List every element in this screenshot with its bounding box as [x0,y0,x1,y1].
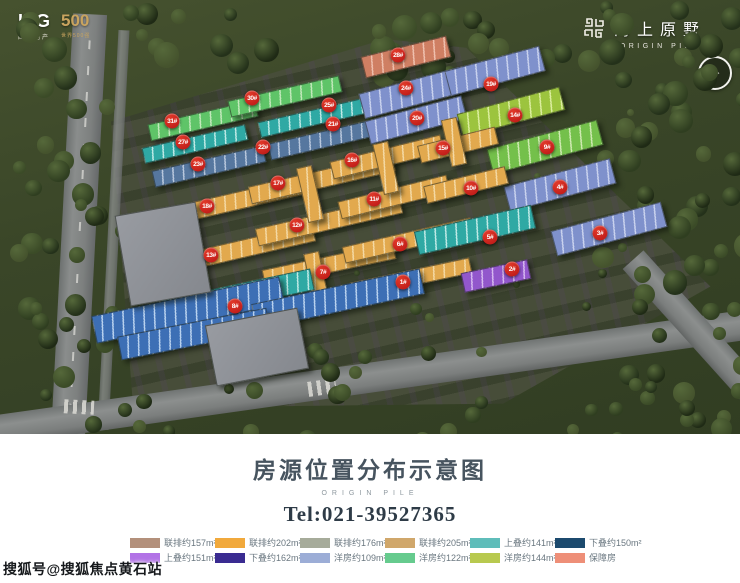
legend-item: 联排约205m² [385,536,470,549]
tree [723,152,740,176]
legend-color-swatch [555,538,585,548]
building-marker-15: 15# [436,141,451,156]
building-marker-28: 28# [391,48,406,63]
project-name-cn: 海上原墅 [614,16,706,40]
tree [243,424,259,434]
legend-color-swatch [385,538,415,548]
tree [721,7,740,30]
tree [477,21,495,39]
tree [600,1,613,14]
tree [254,38,279,63]
legend-label: 保障房 [589,551,616,564]
tree [13,161,26,174]
tree [440,423,457,434]
tree [669,109,693,133]
page-subtitle: ORIGIN PILE [0,490,740,497]
tree [648,93,670,115]
tree [695,193,710,208]
tree [722,187,740,206]
building-marker-23: 23# [191,157,206,172]
building-marker-2: 2# [505,262,520,277]
project-logo-text: 海上原墅 ORIGIN PILE [614,16,706,50]
tree [734,233,740,259]
building-marker-7: 7# [316,265,331,280]
tree [711,418,732,434]
tree [37,136,54,153]
legend-color-swatch [215,553,245,563]
legend-color-swatch [470,538,500,548]
legend-label: 上叠约141m² [504,536,557,549]
building-marker-3: 3# [593,226,608,241]
tree [420,12,442,34]
itg-text: ITG [18,12,51,30]
building-marker-30: 30# [245,91,260,106]
building-marker-9: 9# [540,140,555,155]
building-marker-6: 6# [393,237,408,252]
tree [372,24,387,39]
tree [702,259,719,276]
legend-item: 洋房约122m² [385,551,470,564]
fortune-500-subtext: 世界500强 [61,32,90,39]
project-logo: 海上原墅 ORIGIN PILE [582,16,706,50]
legend-label: 洋房约109m² [334,551,387,564]
tree [676,208,699,231]
legend-item: 下叠约150m² [555,536,640,549]
tree [468,33,489,54]
tree [696,146,712,162]
building-marker-11: 11# [367,192,382,207]
legend-label: 下叠约150m² [589,536,642,549]
tree [673,382,695,404]
tree [441,8,459,26]
tree [34,78,54,98]
fortune-500-number: 500 [61,12,90,30]
legend-item: 上叠约141m² [470,536,555,549]
building-marker-18: 18# [200,199,215,214]
building-marker-17: 17# [271,176,286,191]
building-marker-19: 19# [484,77,499,92]
tree [30,302,43,315]
tree [171,9,186,24]
legend-item: 联排约202m² [215,536,300,549]
tree [154,42,179,67]
legend-item: 联排约157m² [130,536,215,549]
tree [736,92,740,107]
phone-number: Tel:021-39527365 [0,502,740,527]
page-title: 房源位置分布示意图 [0,451,740,485]
legend-color-swatch [215,538,245,548]
legend-item: 联排约176m² [300,536,385,549]
tree [10,244,28,262]
tree [663,81,687,105]
tree [645,381,657,393]
building-marker-10: 10# [464,181,479,196]
tree [674,48,692,66]
crosswalk-west [64,399,95,415]
tree [714,244,728,258]
building-marker-8: 8# [228,299,243,314]
legend-color-swatch [300,553,330,563]
legend-color-swatch [300,538,330,548]
tree [585,404,598,417]
tree [668,216,691,239]
legend-item: 下叠约162m² [215,551,300,564]
building-marker-12: 12# [290,218,305,233]
tree [32,313,49,330]
building-marker-16: 16# [345,153,360,168]
tree [647,364,666,383]
building-marker-27: 27# [176,135,191,150]
tree [567,424,579,434]
tree [637,186,655,204]
legend-color-swatch [555,553,585,563]
legend-label: 洋房约144m² [504,551,557,564]
seal-icon [582,16,606,45]
tree [392,15,417,40]
building-marker-13: 13# [204,248,219,263]
legend-label: 联排约205m² [419,536,472,549]
tree [627,109,634,116]
tree [553,44,572,63]
legend-color-swatch [130,538,160,548]
legend-label: 联排约176m² [334,536,387,549]
building-roof [115,202,212,307]
tree [123,5,139,21]
tree [136,29,148,41]
building-marker-20: 20# [410,111,425,126]
tree [671,102,691,122]
compass-north-icon [698,56,732,90]
legend: 联排约157m²联排约202m²联排约176m²联排约205m²上叠约141m²… [130,535,740,565]
watermark: 搜狐号@搜狐焦点黄石站 [3,559,162,579]
legend-label: 联排约157m² [164,536,217,549]
legend-label: 洋房约122m² [419,551,472,564]
tree [631,126,653,148]
tree [690,412,706,428]
real-estate-site-plan: ITG 国贸地产 500 世界500强 海上原 [0,0,740,583]
tree [163,425,176,434]
tree [639,122,658,141]
itg-subtext: 国贸地产 [18,32,51,41]
building-marker-21: 21# [326,117,341,132]
aerial-site-map: ITG 国贸地产 500 世界500强 海上原 [0,0,740,434]
tree [619,365,639,385]
itg-wordmark: ITG 国贸地产 [18,12,51,41]
tree [679,400,695,416]
tree [609,402,623,416]
tree [680,413,694,427]
tree [210,34,233,57]
tree [618,150,641,173]
tree [40,389,52,401]
building-marker-1: 1# [396,275,411,290]
tree [227,52,249,74]
tree [655,83,669,97]
legend-label: 上叠约151m² [164,551,217,564]
tree [686,196,707,217]
tree [42,238,58,254]
building-marker-31: 31# [165,114,180,129]
tree [25,180,41,196]
legend-item: 洋房约109m² [300,551,385,564]
tree [729,48,740,68]
tree [136,3,158,25]
tree [578,50,600,72]
legend-color-swatch [385,553,415,563]
tree [682,55,695,68]
itg-logo: ITG 国贸地产 500 世界500强 [18,12,90,41]
tree [148,38,166,56]
tree [616,118,636,138]
tree [640,391,654,405]
building-marker-25: 25# [322,98,337,113]
legend-color-swatch [470,553,500,563]
legend-item: 洋房约144m² [470,551,555,564]
tree [21,233,43,255]
building-marker-24: 24# [399,81,414,96]
building-marker-4: 4# [553,180,568,195]
legend-row: 联排约157m²联排约202m²联排约176m²联排约205m²上叠约141m²… [130,535,740,550]
tree [463,11,481,29]
tree [224,8,238,22]
legend-label: 联排约202m² [249,536,302,549]
project-name-en: ORIGIN PILE [614,43,706,50]
tree [465,407,480,422]
tree [615,72,631,88]
legend-label: 下叠约162m² [249,551,302,564]
legend-item: 保障房 [555,551,640,564]
tree [629,378,642,391]
fortune-500-badge: 500 世界500强 [61,12,90,39]
building-marker-5: 5# [483,230,498,245]
legend-row: 上叠约151m²下叠约162m²洋房约109m²洋房约122m²洋房约144m²… [130,550,740,565]
building-marker-14: 14# [508,108,523,123]
tree [18,297,41,320]
building-marker-22: 22# [256,140,271,155]
tree [717,410,731,424]
